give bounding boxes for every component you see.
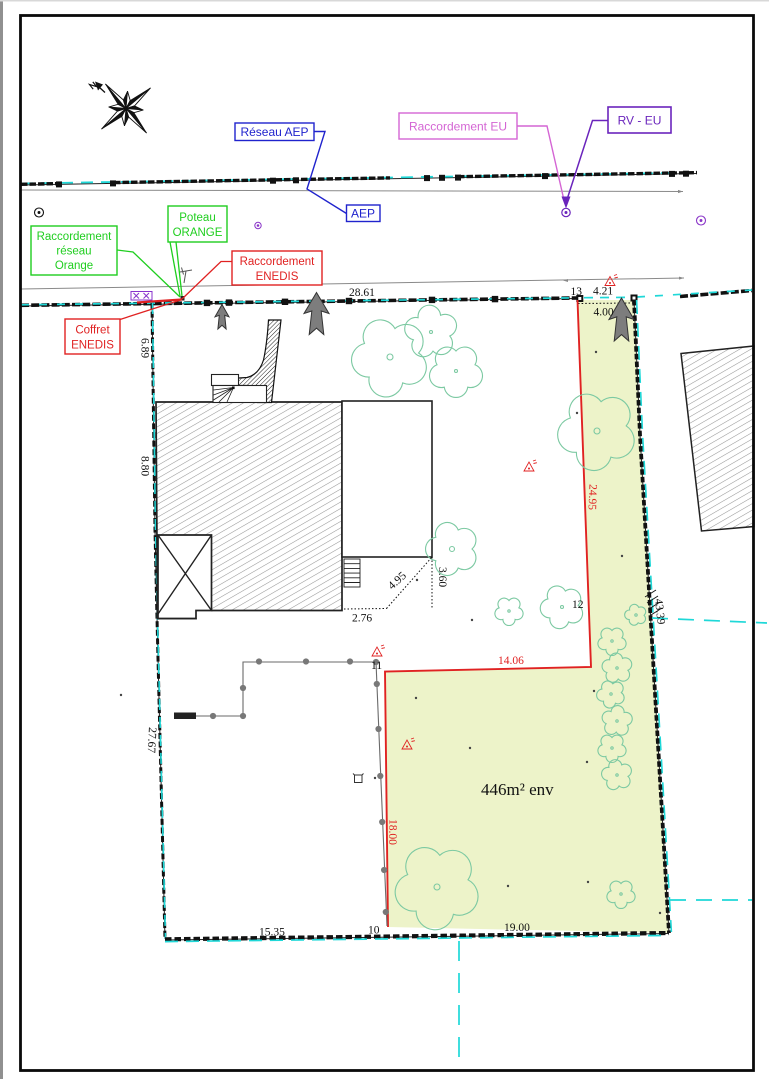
- svg-text:6.89: 6.89: [139, 338, 151, 358]
- svg-text:4.21: 4.21: [593, 286, 613, 298]
- svg-text:14.06: 14.06: [498, 655, 524, 667]
- svg-text:11: 11: [371, 660, 382, 672]
- svg-text:ORANGE: ORANGE: [173, 227, 223, 239]
- svg-text:13: 13: [571, 286, 583, 298]
- svg-text:3.60: 3.60: [436, 567, 448, 587]
- svg-text:18.00: 18.00: [386, 819, 398, 845]
- svg-text:réseau: réseau: [56, 246, 91, 258]
- svg-text:4.00: 4.00: [594, 307, 614, 319]
- svg-text:24.95: 24.95: [586, 484, 599, 511]
- svg-text:Raccordement: Raccordement: [37, 231, 113, 243]
- svg-text:ENEDIS: ENEDIS: [256, 271, 299, 283]
- svg-text:Réseau AEP: Réseau AEP: [240, 125, 308, 139]
- svg-text:19.00: 19.00: [504, 922, 530, 934]
- svg-text:8.80: 8.80: [139, 456, 151, 476]
- svg-text:AEP: AEP: [351, 207, 375, 221]
- svg-text:2.76: 2.76: [352, 613, 372, 625]
- svg-text:RV - EU: RV - EU: [618, 114, 662, 128]
- svg-text:ENEDIS: ENEDIS: [71, 340, 114, 352]
- svg-text:446m² env: 446m² env: [481, 780, 554, 799]
- svg-text:Raccordement: Raccordement: [240, 256, 316, 268]
- svg-text:Orange: Orange: [55, 260, 93, 272]
- svg-text:Raccordement EU: Raccordement EU: [409, 120, 507, 134]
- svg-text:15.35: 15.35: [259, 927, 285, 939]
- svg-text:12: 12: [572, 599, 584, 611]
- svg-text:Poteau: Poteau: [179, 212, 215, 224]
- svg-text:10: 10: [368, 925, 380, 937]
- svg-text:Coffret: Coffret: [75, 325, 110, 337]
- svg-text:28.61: 28.61: [349, 287, 375, 299]
- svg-text:27.67: 27.67: [145, 727, 158, 754]
